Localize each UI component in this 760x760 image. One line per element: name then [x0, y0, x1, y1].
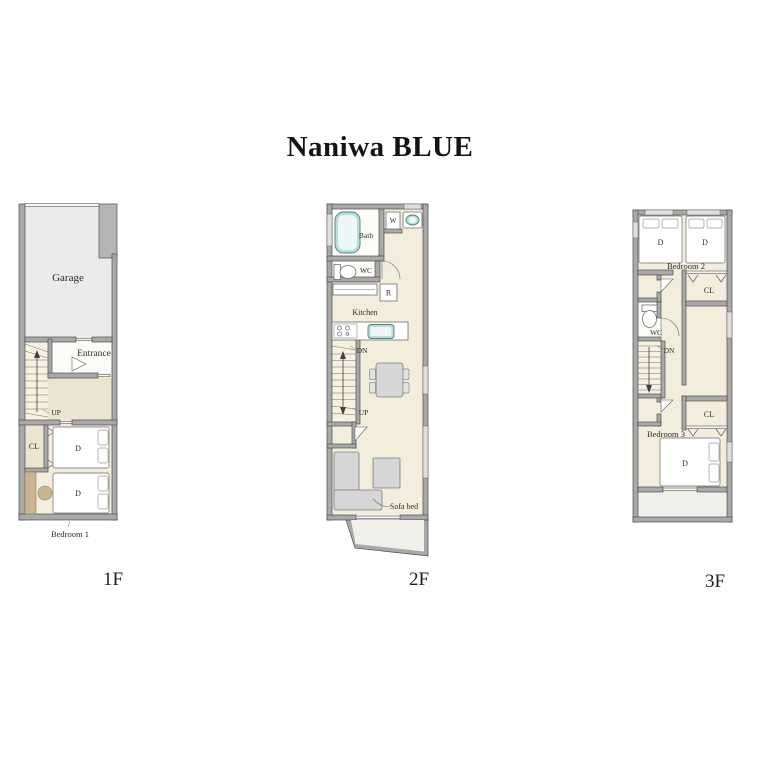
entrance-hall-opening — [98, 375, 110, 377]
bed-label-1f-a: D — [75, 444, 81, 453]
burner-icon — [346, 333, 349, 336]
wall-garage-bottom-right — [92, 337, 112, 342]
wall-wc-right-2f — [375, 261, 380, 277]
bedroom3-label: Bedroom 3 — [647, 429, 685, 439]
wall-closet-lower-bottom — [638, 422, 661, 426]
closet-upper-front — [686, 271, 727, 274]
window-right-2f-b — [423, 426, 428, 478]
chair-icon — [370, 369, 376, 380]
window-top-3f-b — [687, 210, 720, 215]
dn-label-2f: DN — [357, 346, 368, 355]
kitchen-label: Kitchen — [352, 308, 377, 317]
wood-shelf-icon — [25, 472, 36, 514]
toilet-tank-icon-2f — [334, 265, 341, 280]
wall-closet-top-left-right-b — [657, 292, 661, 302]
window-right-3f-b — [727, 442, 732, 462]
floor-plan-page: Naniwa BLUE — [0, 0, 760, 760]
chair-icon — [403, 383, 409, 394]
closet-lower-label: CL — [704, 410, 714, 419]
sink-basin-inner — [409, 217, 417, 223]
wall-closet-lower-right-a — [657, 398, 661, 402]
pillow-icon — [709, 443, 719, 461]
wall-bath-right — [379, 209, 384, 256]
wall-corridor-right — [682, 270, 686, 385]
balcony-door-2f — [356, 516, 400, 519]
wall-closet2-left — [682, 396, 686, 430]
wall-bedroom3-bottom-right — [697, 487, 727, 492]
bed-label-1f-b: D — [75, 489, 81, 498]
stool-icon — [38, 486, 52, 500]
burner-icon — [346, 326, 350, 330]
bath-label: Bath — [359, 231, 373, 240]
pillow-icon — [98, 448, 108, 463]
sofa-icon-horizontal — [334, 490, 382, 510]
wc-label-3f: WC — [650, 328, 662, 337]
wall-closet-upper-bottom — [686, 301, 727, 306]
window-top-3f-a — [645, 210, 673, 215]
balcony-door-3f — [663, 488, 697, 491]
dining-table-icon — [376, 363, 403, 397]
toilet-bowl-icon-2f — [340, 266, 356, 279]
floor-plan-2f: Bath W WC R Kitchen DN UP Sofa bed — [326, 198, 432, 560]
toilet-bowl-icon-3f — [643, 311, 657, 328]
bedroom1-leader — [68, 521, 70, 527]
wall-bottom-3f — [633, 517, 732, 522]
wall-closet2-top — [682, 396, 727, 401]
page-title: Naniwa BLUE — [0, 131, 760, 164]
closet-lower-front — [686, 426, 727, 429]
bed-label-3f-a: D — [658, 238, 664, 247]
garage-entrance-opening — [76, 339, 92, 341]
pillow-icon — [689, 219, 704, 228]
bedroom1-label: Bedroom 1 — [51, 529, 89, 539]
window-right-2f-a — [423, 366, 428, 394]
pillow-icon — [98, 476, 108, 491]
washer-label: W — [390, 217, 397, 225]
stairs-floor-1f — [25, 339, 48, 420]
chair-icon — [403, 369, 409, 380]
wall-left-2f — [327, 204, 332, 520]
wall-stairs-bottom-3f — [638, 394, 661, 398]
wall-bedroom3-bottom-left — [638, 487, 663, 492]
wall-closet-right-1f — [44, 425, 48, 468]
floor-name-3f: 3F — [693, 571, 737, 593]
wall-bottom-2f-left — [327, 515, 356, 520]
bed-label-3f-b: D — [702, 238, 708, 247]
wc-label-2f: WC — [360, 266, 372, 275]
window-left-2f — [327, 214, 332, 246]
garage-door-line — [25, 204, 99, 207]
garage-label: Garage — [52, 272, 84, 284]
wall-stairs-entrance — [48, 339, 52, 378]
wall-bottom-2f-right — [400, 515, 428, 520]
stove-icon — [334, 324, 357, 338]
wall-bath-bottom — [327, 256, 384, 261]
wall-left-3f — [633, 210, 638, 522]
pillow-icon — [709, 464, 719, 482]
pillow-icon — [98, 494, 108, 509]
pillow-icon — [707, 219, 722, 228]
wall-wc-bottom-3f — [638, 337, 661, 341]
wall-right-3f — [727, 210, 732, 522]
wall-wc-right-3f — [657, 302, 661, 318]
floor-plan-1f: Garage Entrance UP CL D D Bedroom 1 — [18, 200, 120, 540]
wall-hall-bottom-right — [72, 420, 117, 425]
entrance-label: Entrance — [77, 349, 111, 359]
burner-icon — [338, 326, 342, 330]
bedroom1-door-opening — [60, 422, 72, 424]
bathtub-inner — [338, 215, 357, 250]
floor-name-2f: 2F — [397, 569, 441, 591]
wall-closet-top-left-right-a — [657, 275, 661, 280]
burner-icon — [338, 332, 342, 336]
wall-bottom-1f — [19, 514, 117, 520]
chair-icon — [370, 383, 376, 394]
wall-left-1f — [19, 204, 25, 520]
closet-label-1f: CL — [29, 442, 39, 451]
balcony-floor-3f — [638, 492, 727, 517]
sofa-bed-label: Sofa bed — [390, 502, 418, 511]
pillow-icon — [643, 219, 659, 228]
pillow-icon — [662, 219, 678, 228]
pillow-icon — [98, 430, 108, 445]
low-table-icon — [373, 458, 400, 488]
wall-entrance-bottom — [48, 373, 98, 378]
wall-closet-bottom-2f — [327, 444, 356, 448]
window-right-3f-a — [727, 312, 732, 338]
wall-right-1f — [112, 254, 117, 520]
kitchen-sink-inner — [371, 327, 392, 336]
dn-label-3f: DN — [664, 346, 675, 355]
garage-pillar — [99, 204, 117, 258]
window-left-3f — [633, 222, 638, 238]
wall-closet-bottom-1f — [25, 468, 48, 472]
wall-washer-stub — [384, 229, 402, 233]
bed-label-3f-c: D — [682, 459, 688, 468]
floor-name-1f: 1F — [91, 569, 135, 591]
fridge-label: R — [386, 289, 392, 298]
wall-closet-top-2f — [327, 422, 356, 426]
window-top-2f — [404, 204, 421, 209]
bedroom2-label: Bedroom 2 — [667, 261, 705, 271]
floor-plan-3f: D D Bedroom 2 CL WC DN CL Bedroom 3 D — [630, 200, 736, 530]
up-label-2f: UP — [359, 408, 369, 417]
wall-hall-bottom-left — [19, 420, 60, 425]
closet-upper-label: CL — [704, 286, 714, 295]
up-label-1f: UP — [51, 408, 61, 417]
